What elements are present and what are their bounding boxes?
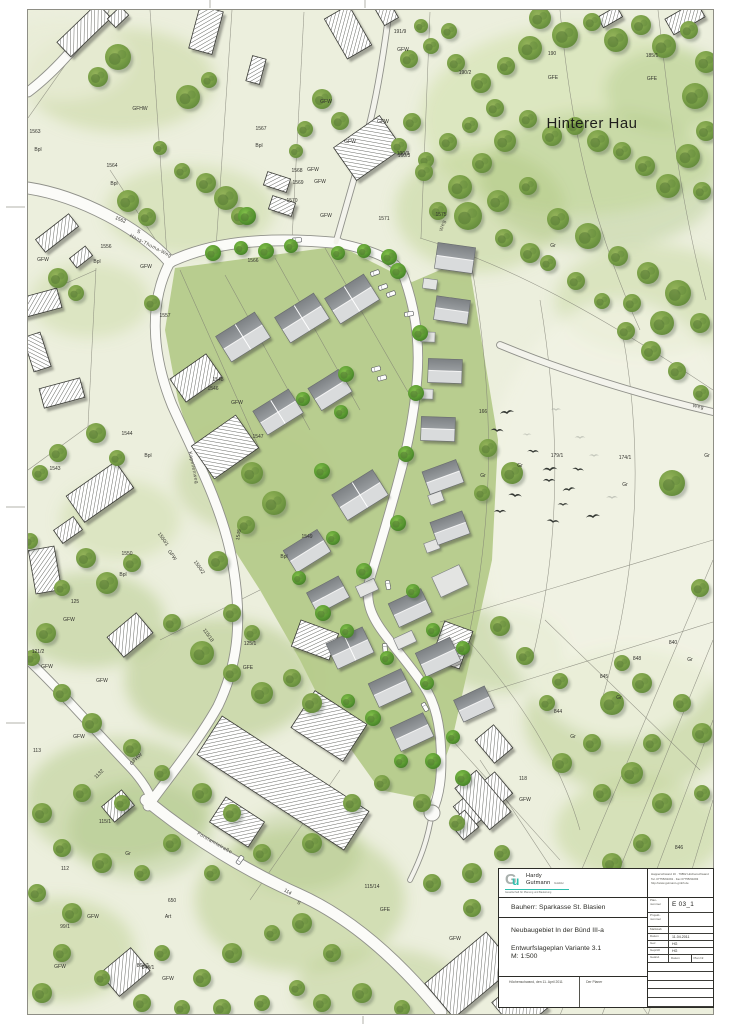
tree-foliage-blob <box>305 125 311 131</box>
tree-foliage-blob <box>472 903 478 909</box>
title-table-label: Projekt-nummer <box>648 913 668 926</box>
parcel-label: 845 <box>600 674 609 680</box>
company-tagline: Gesellschaft für Planung und Bauleitung <box>505 889 569 894</box>
title-table-label: Geprüft <box>648 948 668 954</box>
parcel-label: 1564 <box>106 163 117 169</box>
tree-foliage-blob <box>449 27 455 33</box>
tree-foliage-blob <box>187 90 195 98</box>
tree-foliage-blob <box>416 389 422 395</box>
tree-foliage-blob <box>662 798 669 805</box>
tree-foliage-blob <box>401 757 406 762</box>
title-table-label: Gez. <box>648 941 668 947</box>
parcel-label: 1549 <box>301 534 312 540</box>
tree-foliage-blob <box>645 161 652 168</box>
tree-foliage-blob <box>172 838 178 844</box>
tree-foliage-blob <box>562 758 569 765</box>
parcel-label: GFW <box>320 99 332 105</box>
tree-foliage-blob <box>303 395 308 400</box>
tree-foliage-blob <box>557 213 565 221</box>
tree-foliage-blob <box>212 869 218 875</box>
revision-empty-row <box>648 963 713 972</box>
project-title: Neubaugebiet In der Bünd III-a <box>511 927 643 934</box>
tree-foliage-blob <box>618 251 625 258</box>
tree-foliage-blob <box>632 298 638 304</box>
tree-foliage-blob <box>612 858 619 865</box>
tree-foliage-blob <box>262 999 268 1005</box>
parcel-label: GFHW <box>132 106 148 112</box>
tree-foliage-blob <box>470 121 476 127</box>
tree-foliage-blob <box>671 476 680 485</box>
tree-foliage-blob <box>409 54 415 60</box>
tree-foliage-blob <box>647 267 655 275</box>
tree-foliage-blob <box>682 698 688 704</box>
parcel-label: 840 <box>669 640 678 646</box>
parcel-label: 121/2 <box>32 649 45 655</box>
planned-house <box>433 296 470 324</box>
parcel-label: 1569 <box>292 180 303 186</box>
parcel-label: 190 <box>548 51 557 57</box>
tree-foliage-blob <box>459 180 467 188</box>
parcel-label: GFW <box>96 678 108 684</box>
tree-foliage-blob <box>706 126 713 133</box>
tree-foliage-blob <box>399 142 405 148</box>
tree-foliage-blob <box>232 608 238 614</box>
parcel-label: Gr <box>622 482 628 488</box>
tree-foliage-blob <box>482 489 488 495</box>
tree-foliage-blob <box>413 587 418 592</box>
tree-foliage-blob <box>482 158 489 165</box>
title-table-row: Datum11.04.2011 <box>648 934 713 941</box>
parcel-label: Bpl <box>110 181 117 187</box>
title-table-value <box>668 913 713 926</box>
tree-foliage-blob <box>622 146 628 152</box>
parcel-label: Gr <box>704 453 710 459</box>
tree-foliage-blob <box>42 988 49 995</box>
tree-foliage-blob <box>481 78 488 85</box>
parcel-label: Art <box>165 914 172 920</box>
tree-foliage-blob <box>62 688 68 694</box>
roof-dark-half <box>421 416 455 429</box>
plan-type: Entwurfslageplan Variante 3.1 <box>511 945 643 952</box>
tree-foliage-blob <box>661 316 669 324</box>
tree-foliage-blob <box>251 467 259 475</box>
parcel-label: 1543 <box>49 466 60 472</box>
parcel-label: 118 <box>519 776 527 782</box>
parcel-label: 160/3 <box>398 153 411 159</box>
tree-foliage-blob <box>592 17 598 23</box>
title-table-row: Plan-nummerE 03_1 <box>648 898 713 913</box>
tree-foliage-blob <box>677 366 683 372</box>
tree-foliage-blob <box>424 167 430 173</box>
tree-foliage-blob <box>453 733 458 738</box>
parcel-label: 115/14 <box>365 884 380 890</box>
tree-foliage-blob <box>602 788 608 794</box>
title-block-left: G u Hardy Gutmann GmbH Gesellschaft für … <box>499 869 648 1007</box>
tree-foliage-blob <box>92 718 99 725</box>
project-area: Neubaugebiet In der Bünd III-a Entwurfsl… <box>499 918 647 976</box>
parcel-label: 1546 <box>207 386 218 392</box>
parcel-label: GFW <box>307 167 319 173</box>
parcel-label: 112 <box>61 866 69 872</box>
tree-foliage-blob <box>241 244 246 249</box>
client-line: Bauherr: Sparkasse St. Blasien <box>499 898 647 918</box>
parcel-label: Gr <box>125 851 131 857</box>
tree-foliage-blob <box>576 276 582 282</box>
tree-foliage-blob <box>272 929 278 935</box>
parcel-label: GFE <box>647 76 658 82</box>
parcel-label: Bpl <box>119 572 126 578</box>
parcel-label: GFE <box>548 75 559 81</box>
tree-foliage-blob <box>46 628 53 635</box>
parcel-label: 846 <box>675 845 684 851</box>
parcel-label: 650 <box>168 898 177 904</box>
tree-foliage-blob <box>322 467 328 473</box>
tree-foliage-blob <box>622 659 628 665</box>
signature-row: Höchenschwand, den 11. April 2011 Der Pl… <box>499 976 647 1007</box>
tree-foliage-blob <box>677 286 686 295</box>
tree-foliage-blob <box>58 273 65 280</box>
signature-place-date: Höchenschwand, den 11. April 2011 <box>499 977 580 1007</box>
parcel-label: 179/1 <box>551 453 564 459</box>
tree-foliage-blob <box>382 779 388 785</box>
tree-foliage-blob <box>642 678 649 685</box>
parcel-label: 864/1 <box>137 963 150 969</box>
parcel-label: 1575 <box>435 212 446 218</box>
tree-foliage-blob <box>463 644 468 649</box>
tree-foliage-blob <box>98 72 105 79</box>
company-monogram-icon: G u <box>505 871 523 888</box>
parcel-label: GFW <box>449 936 461 942</box>
parcel-label: Gr <box>616 695 622 701</box>
tree-foliage-blob <box>132 558 138 564</box>
title-table-label: Maßstab <box>648 927 668 933</box>
tree-foliage-blob <box>323 609 329 615</box>
tree-foliage-blob <box>201 646 209 654</box>
tree-foliage-blob <box>398 267 404 273</box>
title-table-label: Datum <box>648 934 668 940</box>
tree-foliage-blob <box>500 621 507 628</box>
parcel-label: GFW <box>162 976 174 982</box>
tree-foliage-blob <box>312 838 319 845</box>
tree-foliage-blob <box>702 186 708 192</box>
tree-foliage-blob <box>106 577 114 585</box>
revision-header-cell: Plan Nr. <box>691 955 714 962</box>
parcel-label: Gr <box>517 463 523 469</box>
tree-foliage-blob <box>615 33 623 41</box>
roof-light-half <box>421 428 455 441</box>
tree-foliage-blob <box>132 743 138 749</box>
tree-foliage-blob <box>102 974 108 980</box>
title-table-value: HG <box>668 941 713 947</box>
tree-foliage-blob <box>506 61 512 67</box>
parcel-label: Gr <box>480 473 486 479</box>
tree-foliage-blob <box>472 868 479 875</box>
tree-foliage-blob <box>389 253 395 259</box>
tree-foliage-blob <box>340 116 346 122</box>
parcel-label: GFW <box>397 47 409 53</box>
parcel-label: 115/1 <box>99 819 111 825</box>
tree-foliage-blob <box>202 788 209 795</box>
tree-foliage-blob <box>547 699 553 705</box>
title-block: G u Hardy Gutmann GmbH Gesellschaft für … <box>498 868 714 1008</box>
tree-foliage-blob <box>142 998 148 1004</box>
tree-foliage-blob <box>431 42 437 48</box>
tree-foliage-blob <box>548 259 554 265</box>
tree-foliage-blob <box>364 247 369 252</box>
tree-foliage-blob <box>62 948 68 954</box>
parcel-label: 99/1 <box>60 924 70 930</box>
address-line: Happerschwand 16 · 79862 Höchenschwand <box>651 872 711 877</box>
tree-foliage-blob <box>202 973 208 979</box>
tree-foliage-blob <box>296 147 301 152</box>
address-line: http://www.gutmann-gmbh.de <box>651 881 711 886</box>
parcel-label: 185/1 <box>646 53 659 59</box>
tree-foliage-blob <box>86 553 93 560</box>
parcel-label: GFW <box>41 664 53 670</box>
tree-foliage-blob <box>262 848 268 854</box>
tree-foliage-blob <box>456 58 462 64</box>
tree-foliage-blob <box>495 103 501 109</box>
planned-house <box>434 242 475 273</box>
tree-foliage-blob <box>602 297 608 303</box>
tree-foliage-blob <box>162 769 168 775</box>
tree-foliage-blob <box>102 858 109 865</box>
title-table-label: Plan-nummer <box>648 898 668 912</box>
tree-foliage-blob <box>312 698 319 705</box>
tree-foliage-blob <box>347 627 352 632</box>
tree-foliage-blob <box>218 556 225 563</box>
tree-foliage-blob <box>687 149 695 157</box>
tree-foliage-blob <box>232 668 238 674</box>
parcel-label: 1550 <box>121 551 132 557</box>
tree-foliage-blob <box>387 654 392 659</box>
title-table-row: Maßstab <box>648 927 713 934</box>
parcel-label: 125 <box>71 599 80 605</box>
tree-foliage-blob <box>76 289 82 295</box>
title-table-value: HG <box>668 948 713 954</box>
tree-foliage-blob <box>247 211 253 217</box>
tree-foliage-blob <box>702 789 708 795</box>
tree-foliage-blob <box>362 988 369 995</box>
scale-note: M: 1:500 <box>511 953 643 960</box>
tree-foliage-blob <box>663 39 671 47</box>
parcel-label: GFW <box>73 734 85 740</box>
revision-empty-row <box>648 981 713 990</box>
tree-foliage-blob <box>525 651 531 657</box>
tree-foliage-blob <box>432 878 438 884</box>
tree-foliage-blob <box>427 679 432 684</box>
tree-foliage-blob <box>402 1004 408 1010</box>
tree-foliage-blob <box>122 799 128 805</box>
tree-foliage-blob <box>162 949 168 955</box>
parcel-label: GFW <box>87 914 99 920</box>
parcel-label: 1544 <box>121 431 132 437</box>
tree-foliage-blob <box>40 469 46 475</box>
tree-foliage-blob <box>225 191 233 199</box>
tree-foliage-blob <box>147 212 153 218</box>
tree-foliage-blob <box>62 843 68 849</box>
tree-foliage-blob <box>291 242 296 247</box>
parcel-label: GFW <box>377 119 389 125</box>
parcel-label: 1571 <box>378 216 389 222</box>
roof-dark-half <box>428 358 462 371</box>
parcel-label: 1568 <box>291 168 302 174</box>
tree-foliage-blob <box>62 584 68 590</box>
tree-foliage-blob <box>299 574 304 579</box>
parcel-label: GFW <box>314 179 326 185</box>
parcel-label: Bpl <box>34 147 41 153</box>
monogram-u: u <box>512 875 519 887</box>
parcel-label: Bpl <box>280 554 287 560</box>
tree-foliage-blob <box>504 135 512 143</box>
title-block-table: Happerschwand 16 · 79862 HöchenschwandTe… <box>648 869 713 1007</box>
tree-foliage-blob <box>338 249 343 254</box>
tree-foliage-blob <box>58 448 64 454</box>
tree-foliage-blob <box>348 697 353 702</box>
tree-foliage-blob <box>232 808 238 814</box>
tree-foliage-blob <box>694 89 703 98</box>
parcel-label: 191/9 <box>394 29 407 35</box>
tree-foliage-blob <box>463 774 469 780</box>
tree-foliage-blob <box>297 984 303 990</box>
tree-foliage-blob <box>352 798 358 804</box>
tree-foliage-blob <box>213 249 219 255</box>
parcel-label: GFW <box>140 264 152 270</box>
parcel-label: Bpl <box>93 259 100 265</box>
tree-foliage-blob <box>37 888 43 894</box>
tree-foliage-blob <box>341 408 346 413</box>
tree-foliage-blob <box>700 583 706 589</box>
tree-foliage-blob <box>530 248 537 255</box>
revision-header-row: Geänd.DatumPlan Nr. <box>648 955 713 963</box>
tree-foliage-blob <box>651 346 658 353</box>
tree-foliage-blob <box>182 167 188 173</box>
tree-foliage-blob <box>322 998 328 1004</box>
parcel-label: GFE <box>243 665 254 671</box>
parcel-label: Gr <box>550 243 556 249</box>
revision-empty-row <box>648 972 713 981</box>
parcel-label: 1547 <box>252 434 263 440</box>
parcel-label: Gr <box>687 657 693 663</box>
tree-foliage-blob <box>117 454 123 460</box>
garage <box>422 278 437 290</box>
tree-foliage-blob <box>564 28 573 37</box>
planned-house <box>428 358 463 383</box>
tree-foliage-blob <box>246 520 252 526</box>
tree-foliage-blob <box>702 728 709 735</box>
tree-foliage-blob <box>412 117 418 123</box>
tree-foliage-blob <box>373 714 379 720</box>
tree-foliage-blob <box>529 41 537 49</box>
tree-foliage-blob <box>641 20 648 27</box>
tree-foliage-blob <box>626 326 632 332</box>
tree-foliage-blob <box>689 25 695 31</box>
parcel-label: GFW <box>320 213 332 219</box>
parcel-label: 844 <box>554 709 563 715</box>
tree-foliage-blob <box>252 629 258 635</box>
area-label: Hinterer Hau <box>546 115 637 132</box>
tree-foliage-blob <box>152 299 158 305</box>
parcel-label: GFW <box>519 797 531 803</box>
tree-foliage-blob <box>117 50 126 59</box>
tree-foliage-blob <box>346 370 352 376</box>
parcel-label: 1563 <box>29 129 40 135</box>
tree-foliage-blob <box>652 738 658 744</box>
tree-foliage-blob <box>182 1004 188 1010</box>
tree-foliage-blob <box>127 195 135 203</box>
tree-foliage-blob <box>273 496 281 504</box>
title-table-value: E 03_1 <box>668 898 713 912</box>
parcel-label: GFE <box>380 907 391 913</box>
tree-foliage-blob <box>667 179 675 187</box>
tree-foliage-blob <box>433 757 439 763</box>
tree-foliage-blob <box>222 1003 228 1009</box>
parcel-label: 1567 <box>255 126 266 132</box>
company-suffix: GmbH <box>554 881 563 885</box>
tree-foliage-blob <box>302 918 309 925</box>
tree-foliage-blob <box>502 849 508 855</box>
signature-planner: Der Planer <box>580 977 647 1007</box>
tree-foliage-blob <box>701 389 707 395</box>
tree-foliage-blob <box>206 178 213 185</box>
company-logo-row: G u Hardy Gutmann GmbH Gesellschaft für … <box>499 869 647 898</box>
tree-foliage-blob <box>467 208 477 218</box>
revision-empty-rows <box>648 963 713 1007</box>
parcel-label: GFW <box>37 257 49 263</box>
parcel-label: 1557 <box>159 313 170 319</box>
tree-foliage-blob <box>528 114 534 120</box>
parcel-label: 113 <box>33 748 41 754</box>
tree-foliage-blob <box>406 450 412 456</box>
revision-empty-row <box>648 989 713 998</box>
tree-foliage-blob <box>142 869 148 875</box>
parcel-label: 1548 <box>212 377 223 383</box>
tree-foliage-blob <box>700 318 707 325</box>
tree-foliage-blob <box>30 537 36 543</box>
tree-foliage-blob <box>504 233 510 239</box>
revision-header-cell: Datum <box>668 955 691 962</box>
tree-foliage-blob <box>592 738 598 744</box>
tree-foliage-blob <box>539 12 547 20</box>
parcel-label: GFW <box>54 964 66 970</box>
tree-foliage-blob <box>96 428 103 435</box>
tree-foliage-blob <box>420 329 426 335</box>
company-name-line2: Gutmann <box>526 880 550 886</box>
roof-light-half <box>428 370 462 383</box>
company-address: Happerschwand 16 · 79862 HöchenschwandTe… <box>648 869 713 898</box>
tree-foliage-blob <box>422 798 428 804</box>
tree-foliage-blob <box>560 677 566 683</box>
parcel-label: GFW <box>344 139 356 145</box>
tree-foliage-blob <box>631 767 639 775</box>
tree-foliage-blob <box>266 247 272 253</box>
tree-foliage-blob <box>642 838 648 844</box>
tree-foliage-blob <box>497 195 505 203</box>
tree-foliage-blob <box>448 137 454 143</box>
title-table-value: 11.04.2011 <box>668 934 713 940</box>
company-name: Hardy Gutmann GmbH <box>526 873 564 886</box>
title-table-row: Gez.HG <box>648 941 713 948</box>
parcel-label: 1566 <box>247 258 258 264</box>
tree-foliage-blob <box>528 181 534 187</box>
parcel-label: Bpl <box>144 453 151 459</box>
tree-foliage-blob <box>172 618 178 624</box>
parcel-label: 1556 <box>100 244 111 250</box>
tree-foliage-blob <box>587 229 596 238</box>
revision-empty-row <box>648 998 713 1007</box>
title-table-row: Projekt-nummer <box>648 913 713 927</box>
tree-foliage-blob <box>333 534 338 539</box>
